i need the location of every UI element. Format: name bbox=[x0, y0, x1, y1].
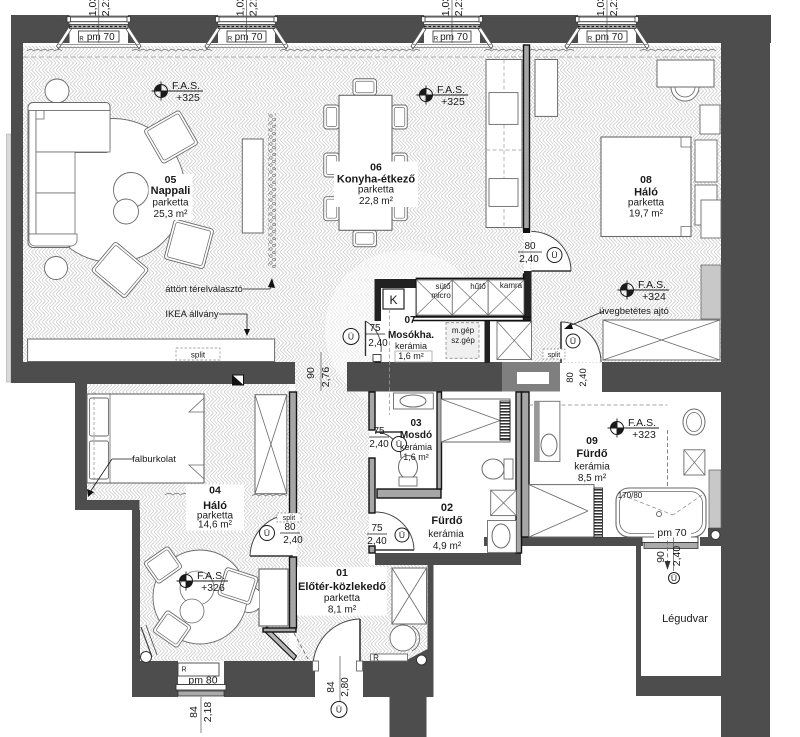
svg-text:170/80: 170/80 bbox=[618, 491, 643, 500]
svg-text:sz.gép: sz.gép bbox=[451, 336, 475, 345]
svg-text:1,6 m²: 1,6 m² bbox=[398, 351, 424, 361]
svg-text:04: 04 bbox=[209, 485, 221, 497]
svg-text:2,80: 2,80 bbox=[340, 677, 351, 697]
svg-text:8,1 m²: 8,1 m² bbox=[328, 605, 357, 616]
svg-text:09: 09 bbox=[586, 435, 598, 447]
svg-text:Nappali: Nappali bbox=[151, 185, 191, 197]
svg-text:falburkolat: falburkolat bbox=[132, 454, 176, 465]
svg-text:split: split bbox=[548, 352, 561, 359]
svg-text:02: 02 bbox=[441, 502, 453, 514]
svg-text:kerámia: kerámia bbox=[574, 462, 610, 473]
svg-text:1,03: 1,03 bbox=[440, 0, 452, 16]
svg-text:2,40: 2,40 bbox=[578, 368, 589, 387]
svg-text:8,5 m²: 8,5 m² bbox=[578, 473, 607, 484]
svg-text:Mosókha.: Mosókha. bbox=[388, 330, 434, 341]
svg-text:01: 01 bbox=[336, 567, 348, 579]
svg-text:2,18: 2,18 bbox=[202, 702, 214, 723]
svg-text:split: split bbox=[283, 515, 296, 522]
svg-text:2,21: 2,21 bbox=[248, 0, 260, 16]
svg-text:+325: +325 bbox=[176, 92, 200, 104]
svg-text:pm 70: pm 70 bbox=[595, 32, 623, 43]
svg-text:R: R bbox=[588, 37, 593, 43]
svg-text:sütő: sütő bbox=[435, 282, 451, 291]
svg-text:08: 08 bbox=[640, 174, 652, 186]
svg-text:K: K bbox=[389, 293, 397, 307]
svg-text:2,40: 2,40 bbox=[283, 535, 303, 546]
svg-text:üvegbetétes ajtó: üvegbetétes ajtó bbox=[599, 306, 669, 317]
svg-text:Mosdó: Mosdó bbox=[400, 430, 432, 441]
svg-text:Fürdő: Fürdő bbox=[431, 515, 462, 527]
svg-text:Ü: Ü bbox=[671, 573, 677, 583]
svg-text:Ü: Ü bbox=[264, 528, 270, 538]
svg-text:R: R bbox=[228, 37, 233, 43]
svg-text:R: R bbox=[434, 37, 439, 43]
svg-text:parketta: parketta bbox=[324, 593, 361, 604]
svg-text:pm 70: pm 70 bbox=[657, 527, 686, 539]
svg-text:1,03: 1,03 bbox=[87, 0, 99, 16]
svg-text:90: 90 bbox=[655, 551, 667, 563]
svg-text:75: 75 bbox=[371, 523, 383, 534]
svg-text:R: R bbox=[181, 667, 186, 674]
svg-text:75: 75 bbox=[373, 426, 385, 437]
svg-text:4,9 m²: 4,9 m² bbox=[433, 541, 462, 552]
svg-text:Ü: Ü bbox=[399, 530, 405, 540]
svg-text:14,6 m²: 14,6 m² bbox=[198, 520, 233, 531]
svg-text:pm 70: pm 70 bbox=[87, 32, 115, 43]
svg-text:R: R bbox=[79, 37, 84, 43]
svg-text:84: 84 bbox=[326, 681, 337, 693]
svg-text:19,7 m²: 19,7 m² bbox=[629, 209, 664, 220]
svg-text:+325: +325 bbox=[441, 96, 465, 108]
svg-text:Fürdő: Fürdő bbox=[576, 448, 607, 460]
svg-text:1,02: 1,02 bbox=[235, 0, 247, 16]
svg-text:2,40: 2,40 bbox=[368, 338, 388, 349]
svg-text:m.gép: m.gép bbox=[452, 326, 475, 335]
svg-text:03: 03 bbox=[410, 418, 422, 429]
svg-text:2,21: 2,21 bbox=[608, 0, 620, 16]
svg-text:Előtér-közlekedő: Előtér-közlekedő bbox=[298, 581, 386, 593]
svg-text:06: 06 bbox=[370, 162, 382, 174]
svg-text:Ü: Ü bbox=[570, 336, 576, 346]
svg-text:split: split bbox=[191, 351, 206, 360]
svg-text:R: R bbox=[373, 654, 379, 663]
svg-text:2,40: 2,40 bbox=[671, 546, 683, 567]
svg-text:07: 07 bbox=[404, 315, 416, 326]
svg-text:hűtő: hűtő bbox=[470, 282, 486, 291]
svg-text:Ü: Ü bbox=[551, 250, 557, 260]
svg-text:2,21: 2,21 bbox=[100, 0, 112, 16]
svg-text:75: 75 bbox=[369, 323, 381, 334]
svg-text:+324: +324 bbox=[642, 291, 666, 303]
svg-text:F.A.S.: F.A.S. bbox=[628, 417, 656, 429]
svg-text:micro: micro bbox=[431, 291, 451, 300]
svg-text:IKEA állvány: IKEA állvány bbox=[165, 309, 219, 320]
svg-text:pm 70: pm 70 bbox=[235, 32, 263, 43]
svg-text:parketta: parketta bbox=[152, 198, 189, 209]
svg-text:2,40: 2,40 bbox=[519, 254, 539, 265]
svg-text:2,21: 2,21 bbox=[453, 0, 465, 16]
svg-text:80: 80 bbox=[524, 241, 536, 252]
svg-text:pm 70: pm 70 bbox=[440, 32, 468, 43]
svg-text:1,03: 1,03 bbox=[595, 0, 607, 16]
svg-text:+326: +326 bbox=[201, 582, 225, 594]
svg-text:kerámia: kerámia bbox=[395, 341, 427, 351]
svg-text:F.A.S.: F.A.S. bbox=[638, 279, 666, 291]
svg-text:Ü: Ü bbox=[348, 332, 354, 342]
svg-text:Légudvar: Légudvar bbox=[662, 613, 708, 625]
svg-text:22,8 m²: 22,8 m² bbox=[359, 196, 394, 207]
svg-text:F.A.S.: F.A.S. bbox=[197, 570, 225, 582]
svg-text:2,76: 2,76 bbox=[320, 367, 332, 388]
svg-text:90: 90 bbox=[305, 367, 317, 379]
svg-text:84: 84 bbox=[188, 706, 200, 718]
svg-text:25,3 m²: 25,3 m² bbox=[154, 209, 189, 220]
svg-text:2,40: 2,40 bbox=[367, 536, 387, 547]
svg-text:kerámia: kerámia bbox=[428, 529, 464, 540]
svg-text:2,40: 2,40 bbox=[369, 439, 389, 450]
svg-text:parketta: parketta bbox=[358, 185, 395, 196]
svg-text:1,6 m²: 1,6 m² bbox=[403, 452, 429, 462]
svg-text:+323: +323 bbox=[632, 429, 656, 441]
svg-text:kerámia: kerámia bbox=[400, 442, 432, 452]
svg-text:Ü: Ü bbox=[336, 705, 342, 715]
svg-text:parketta: parketta bbox=[628, 198, 665, 209]
svg-text:F.A.S.: F.A.S. bbox=[172, 80, 200, 92]
svg-text:kamra: kamra bbox=[500, 281, 523, 290]
svg-text:F.A.S.: F.A.S. bbox=[437, 84, 465, 96]
svg-text:80: 80 bbox=[565, 372, 576, 383]
svg-text:áttört térelválasztó: áttört térelválasztó bbox=[165, 284, 243, 295]
svg-text:80: 80 bbox=[284, 522, 296, 533]
